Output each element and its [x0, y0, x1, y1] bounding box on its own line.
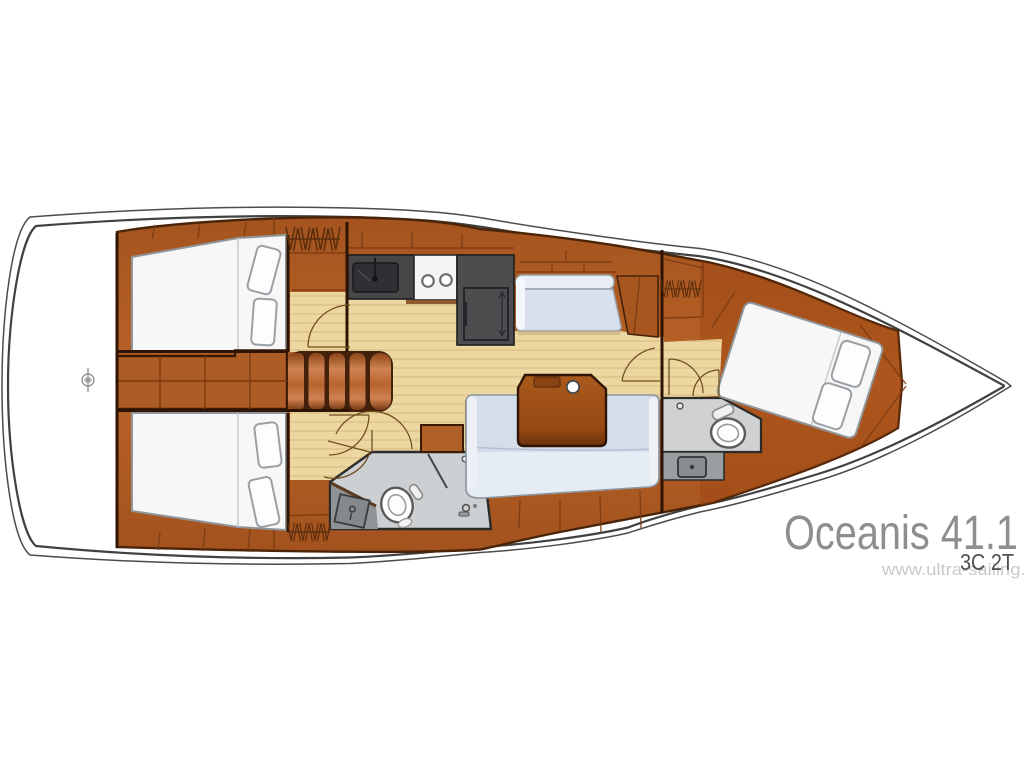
svg-text:3C 2T: 3C 2T — [960, 549, 1014, 575]
